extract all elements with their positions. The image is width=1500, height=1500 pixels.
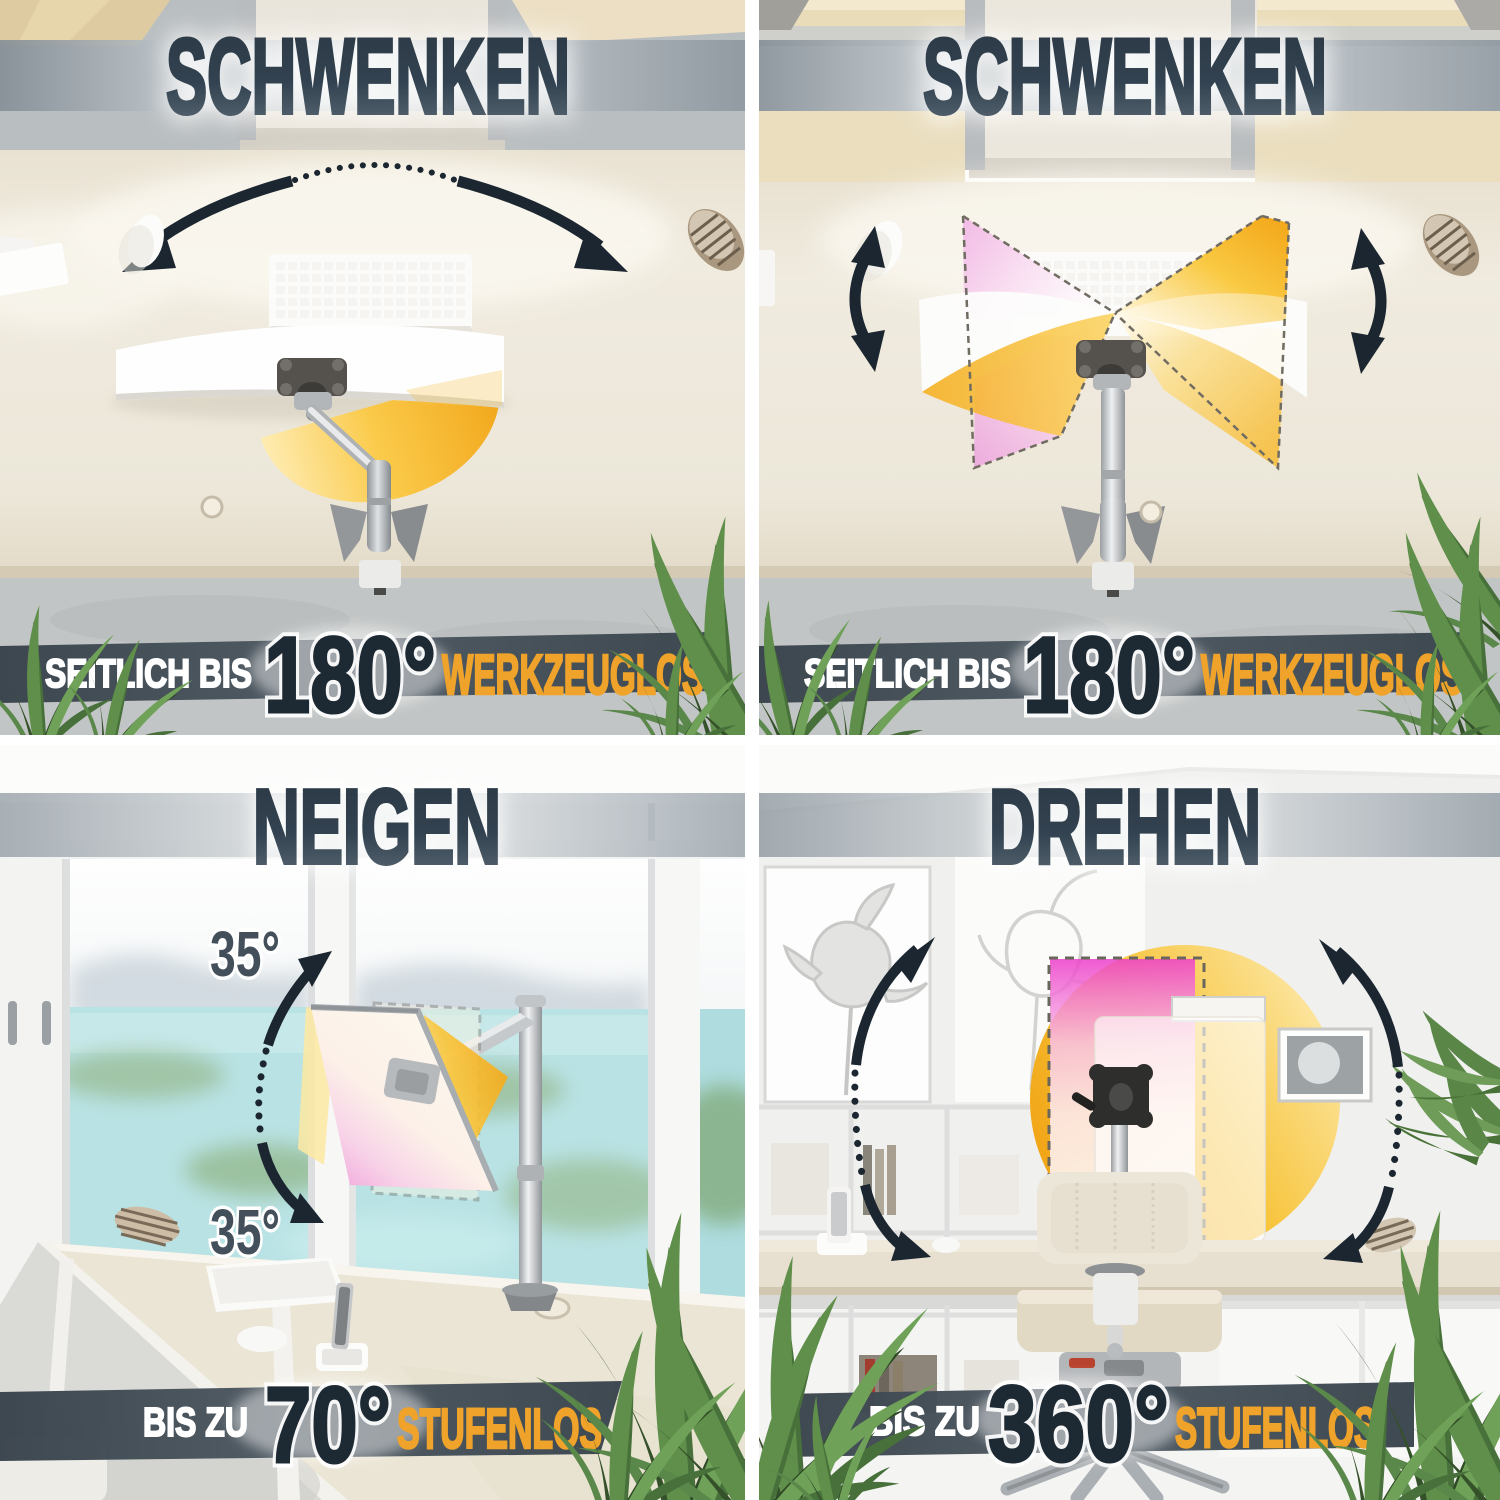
svg-text:180°: 180° (1023, 614, 1195, 735)
svg-text:NEIGEN: NEIGEN (253, 768, 501, 886)
svg-text:SCHWENKEN: SCHWENKEN (166, 16, 570, 136)
svg-text:360°: 360° (988, 1363, 1169, 1484)
svg-text:SEITLICH BIS: SEITLICH BIS (804, 652, 1011, 696)
svg-text:SCHWENKEN: SCHWENKEN (923, 16, 1327, 136)
svg-text:180°: 180° (264, 614, 436, 735)
svg-text:BIS ZU: BIS ZU (143, 1399, 248, 1445)
svg-text:35°: 35° (210, 918, 280, 990)
svg-text:DREHEN: DREHEN (989, 768, 1261, 886)
svg-text:70°: 70° (265, 1364, 391, 1485)
svg-text:STUFENLOS: STUFENLOS (1175, 1396, 1376, 1460)
svg-text:35°: 35° (210, 1196, 280, 1268)
